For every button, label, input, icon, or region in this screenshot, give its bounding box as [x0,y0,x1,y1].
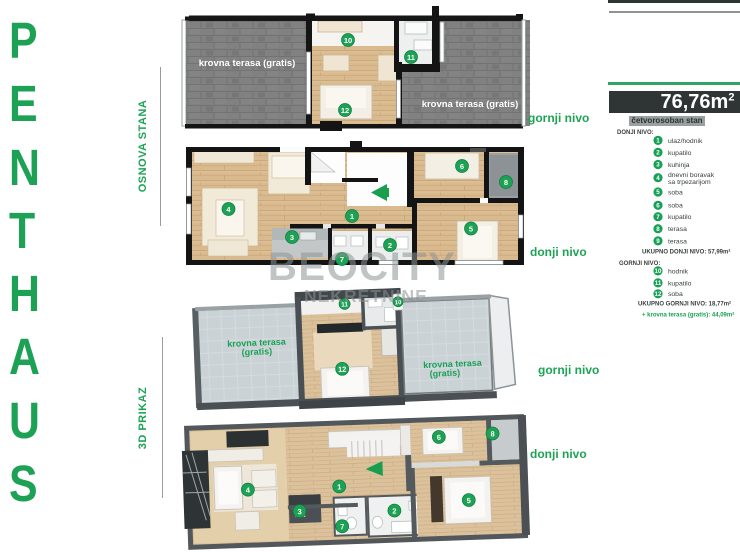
svg-text:dnevni boravak: dnevni boravak [668,172,715,179]
svg-text:8: 8 [504,178,508,187]
svg-text:1: 1 [656,138,660,145]
svg-text:11: 11 [407,53,415,62]
svg-text:soba: soba [668,203,683,210]
svg-text:8: 8 [490,429,494,438]
svg-text:krovna terasa (gratis): krovna terasa (gratis) [199,58,296,69]
svg-text:3: 3 [290,233,294,242]
svg-text:ulaz/hodnik: ulaz/hodnik [668,138,703,145]
svg-text:9: 9 [656,238,660,245]
svg-text:12: 12 [341,106,349,115]
svg-text:10: 10 [655,268,662,275]
svg-text:6: 6 [460,162,464,171]
svg-text:krovna terasa (gratis): krovna terasa (gratis) [422,99,519,110]
svg-text:2: 2 [656,150,660,157]
svg-text:5: 5 [467,496,471,505]
svg-text:kupatilo: kupatilo [668,214,692,221]
svg-text:7: 7 [656,214,660,221]
svg-text:terasa: terasa [668,226,687,233]
svg-text:(gratis): (gratis) [429,368,460,379]
svg-text:11: 11 [655,280,662,287]
svg-text:GORNJI NIVO:: GORNJI NIVO: [619,261,660,267]
svg-text:10: 10 [344,36,352,45]
svg-text:1: 1 [350,212,354,221]
svg-text:UKUPNO GORNJI NIVO: 18,77m²: UKUPNO GORNJI NIVO: 18,77m² [638,300,731,307]
svg-text:DONJI NIVO:: DONJI NIVO: [617,130,654,136]
svg-text:8: 8 [656,226,660,233]
svg-text:5: 5 [469,225,473,234]
svg-text:soba: soba [668,291,683,298]
svg-text:sa trpezarijom: sa trpezarijom [668,179,711,186]
svg-text:1: 1 [337,482,341,491]
svg-text:hodnik: hodnik [668,268,689,275]
svg-text:kupatilo: kupatilo [668,150,692,157]
svg-text:kuhinja: kuhinja [668,162,690,169]
svg-text:UKUPNO DONJI NIVO: 57,99m²: UKUPNO DONJI NIVO: 57,99m² [642,249,730,256]
svg-text:12: 12 [655,291,662,298]
svg-text:6: 6 [656,203,660,210]
svg-text:12: 12 [338,365,347,374]
svg-text:4: 4 [656,175,660,182]
svg-text:soba: soba [668,189,683,196]
svg-text:5: 5 [656,189,660,196]
svg-text:kupatilo: kupatilo [668,280,692,287]
svg-text:3: 3 [297,507,301,516]
svg-text:+ krovna terasa (gratis): 44,0: + krovna terasa (gratis): 44,09m² [642,311,734,318]
svg-text:(gratis): (gratis) [241,346,272,357]
svg-text:7: 7 [340,522,344,531]
svg-text:terasa: terasa [668,238,687,245]
svg-text:2: 2 [392,506,396,515]
svg-text:3: 3 [656,162,660,169]
svg-text:6: 6 [437,433,441,442]
